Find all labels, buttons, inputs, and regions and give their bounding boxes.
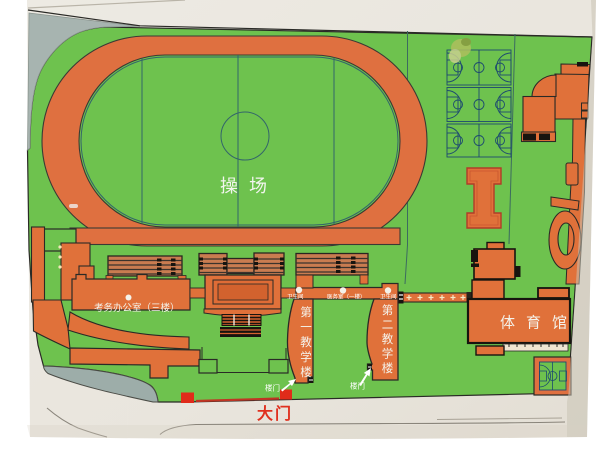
svg-text:楼: 楼 [300, 365, 312, 379]
svg-text:场: 场 [249, 176, 267, 196]
svg-text:楼: 楼 [382, 361, 394, 375]
svg-text:体育馆: 体育馆 [500, 315, 578, 332]
svg-text:操: 操 [220, 176, 238, 196]
svg-text:学: 学 [382, 347, 394, 361]
svg-text:考务办公室（三楼）: 考务办公室（三楼） [94, 302, 180, 314]
svg-text:二: 二 [382, 320, 394, 332]
svg-text:一: 一 [300, 322, 312, 334]
svg-text:第: 第 [300, 305, 312, 319]
svg-text:学: 学 [300, 350, 312, 364]
svg-text:卫生间: 卫生间 [380, 293, 397, 301]
svg-text:大门: 大门 [257, 404, 293, 423]
svg-text:卫生间: 卫生间 [287, 293, 304, 301]
svg-text:教: 教 [382, 332, 394, 346]
svg-text:楼门: 楼门 [265, 383, 280, 393]
svg-text:第: 第 [382, 303, 394, 317]
svg-text:医务室（一楼）: 医务室（一楼） [327, 293, 366, 301]
svg-text:教: 教 [300, 335, 312, 349]
